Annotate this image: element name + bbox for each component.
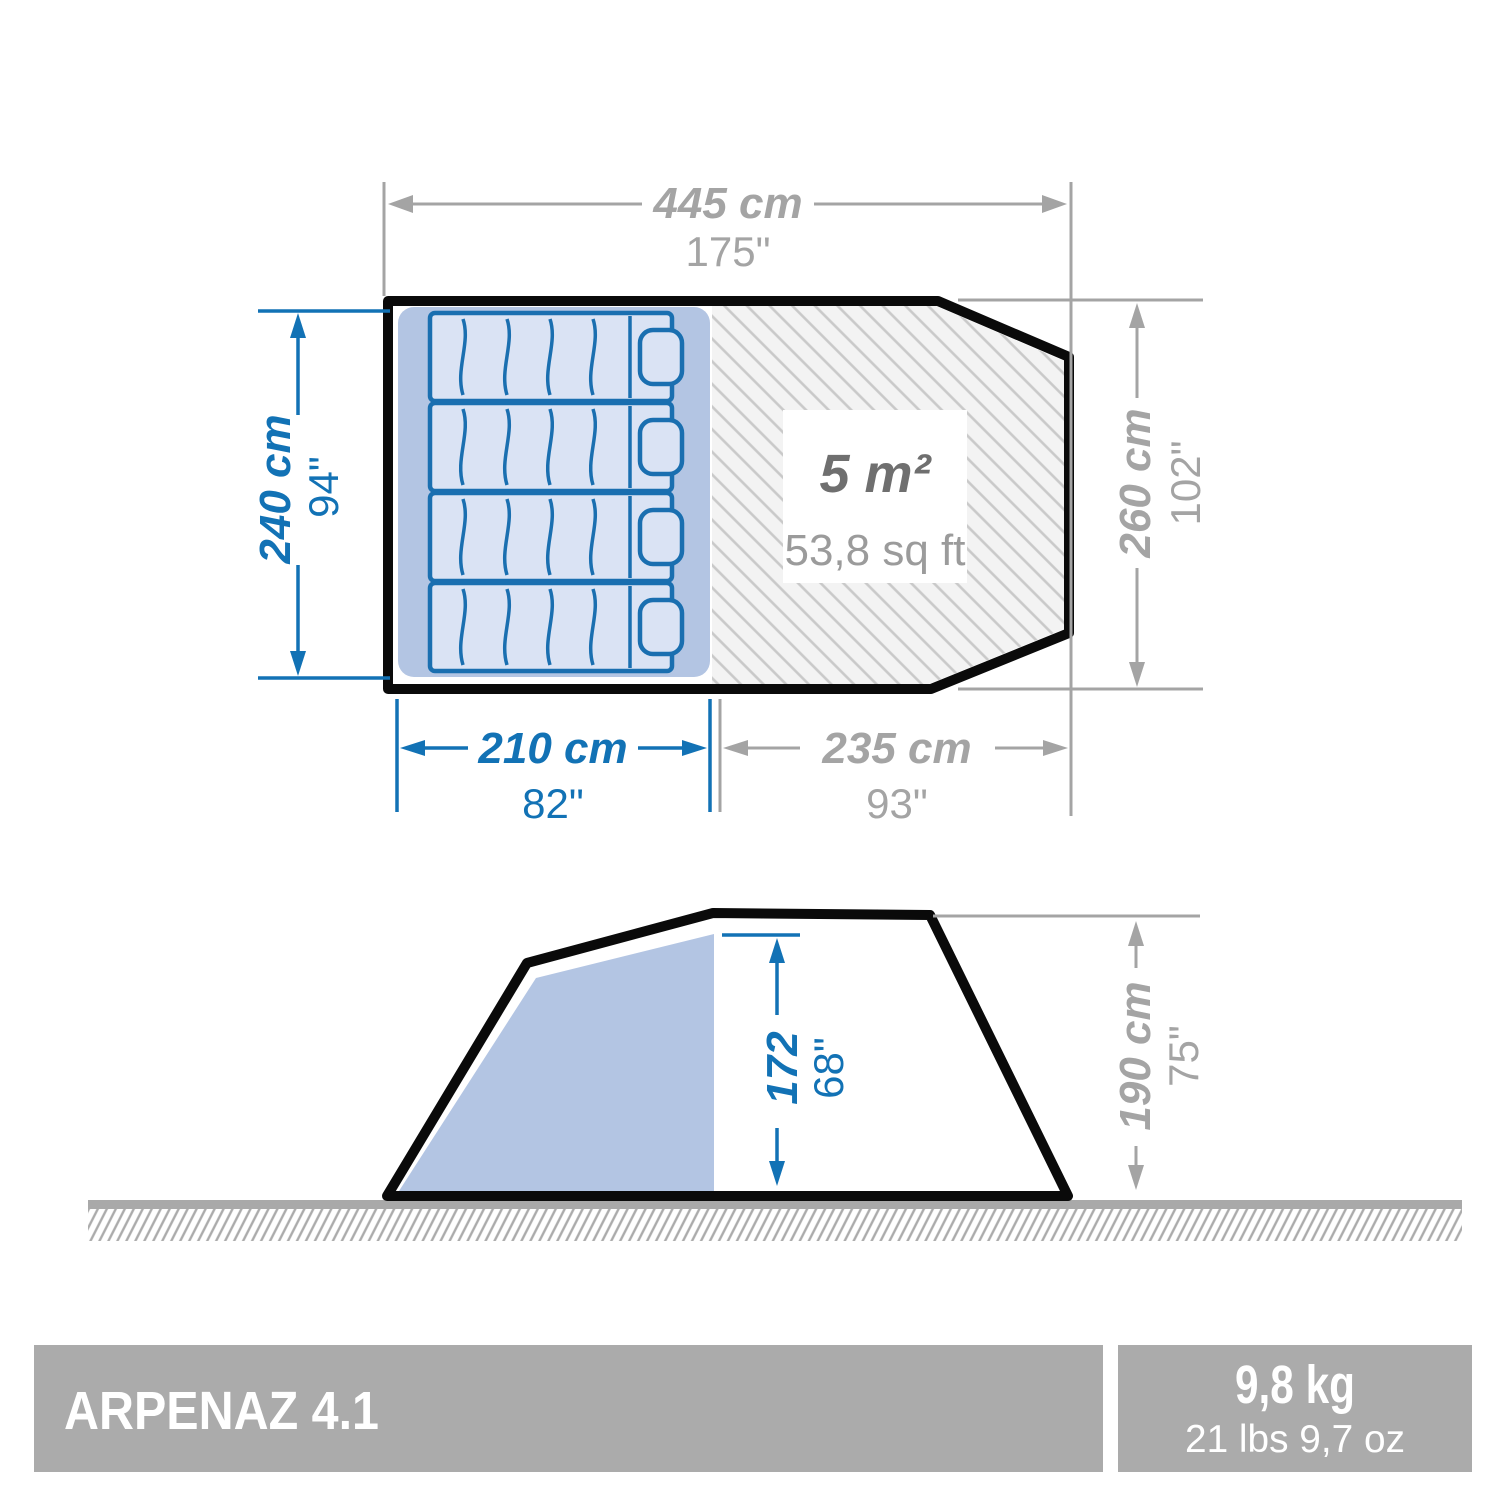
top-view-floorplan: 5 m² 53,8 sq ft xyxy=(388,301,1069,689)
exterior-height-in-label: 75" xyxy=(1160,1025,1207,1087)
diagram-canvas: 5 m² 53,8 sq ft 445 cm 175" 240 cm 94" 2… xyxy=(0,0,1500,1500)
sleeping-width-in-label: 82" xyxy=(522,780,584,827)
arrow-up-icon xyxy=(1129,303,1145,328)
arrow-right-icon xyxy=(1043,740,1068,756)
sleeping-depth-cm-label: 240 cm xyxy=(251,414,300,564)
total-width-in-label: 175" xyxy=(686,228,771,275)
dim-sleeping-depth: 240 cm 94" xyxy=(251,311,390,678)
arrow-down-icon xyxy=(290,651,306,676)
exterior-height-cm-label: 190 cm xyxy=(1111,981,1160,1130)
living-area-sqft-label: 53,8 sq ft xyxy=(784,526,965,575)
dim-sleeping-width: 210 cm 82" xyxy=(397,699,710,827)
arrow-up-icon xyxy=(1128,921,1144,946)
arrow-left-icon xyxy=(388,195,413,213)
weight-metric-label: 9,8 kg xyxy=(1235,1355,1355,1415)
arrow-left-icon xyxy=(400,740,425,756)
sleeping-depth-in-label: 94" xyxy=(300,456,347,518)
arrow-up-icon xyxy=(290,313,306,338)
mattress xyxy=(430,583,682,671)
interior-height-cm-label: 172 xyxy=(758,1031,807,1105)
model-name-label: ARPENAZ 4.1 xyxy=(64,1381,379,1441)
sleeping-width-cm-label: 210 cm xyxy=(477,724,627,773)
living-area-m2-label: 5 m² xyxy=(819,444,932,504)
tent-dimensions-diagram: 5 m² 53,8 sq ft 445 cm 175" 240 cm 94" 2… xyxy=(0,0,1500,1500)
living-width-cm-label: 235 cm xyxy=(821,724,971,773)
mattress xyxy=(430,403,682,491)
max-depth-in-label: 102" xyxy=(1162,441,1209,526)
arrow-down-icon xyxy=(1128,1165,1144,1190)
arrow-right-icon xyxy=(682,740,707,756)
living-width-in-label: 93" xyxy=(866,780,928,827)
dim-living-width: 235 cm 93" xyxy=(720,699,1068,827)
total-width-cm-label: 445 cm xyxy=(652,179,802,228)
arrow-down-icon xyxy=(1129,662,1145,687)
interior-height-in-label: 68" xyxy=(805,1037,852,1099)
max-depth-cm-label: 260 cm xyxy=(1111,408,1160,558)
footer-bar: ARPENAZ 4.1 9,8 kg 21 lbs 9,7 oz xyxy=(34,1345,1472,1472)
ground-line xyxy=(88,1200,1462,1209)
mattress xyxy=(430,493,682,581)
ground-hatch xyxy=(88,1209,1462,1241)
mattress xyxy=(430,313,682,401)
arrow-left-icon xyxy=(723,740,748,756)
weight-imperial-label: 21 lbs 9,7 oz xyxy=(1185,1418,1405,1461)
arrow-right-icon xyxy=(1042,195,1067,213)
